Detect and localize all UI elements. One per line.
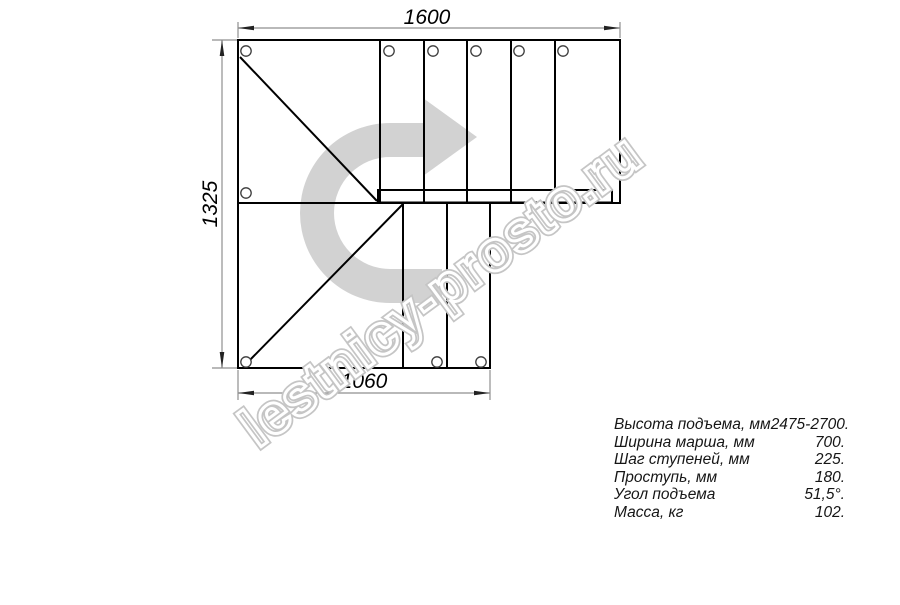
spec-value: 225. xyxy=(815,451,845,469)
spec-row: Шаг ступеней, мм 225. xyxy=(614,451,845,469)
spec-row: Ширина марша, мм 700. xyxy=(614,434,845,452)
spec-label: Масса, кг xyxy=(614,504,683,522)
post-hole-circle xyxy=(428,46,438,56)
spec-label: Ширина марша, мм xyxy=(614,434,755,452)
dimension-arrowhead xyxy=(220,40,225,56)
post-hole-circle xyxy=(241,188,251,198)
dimension-label-top: 1600 xyxy=(404,6,451,29)
dimension-top: 1600 xyxy=(238,6,620,38)
spec-row: Масса, кг 102. xyxy=(614,504,845,522)
spec-table: Высота подъема, мм 2475-2700. Ширина мар… xyxy=(614,416,845,522)
spec-label: Высота подъема, мм xyxy=(614,416,771,434)
dimension-arrowhead xyxy=(238,26,254,31)
post-hole-circle xyxy=(514,46,524,56)
spec-label: Шаг ступеней, мм xyxy=(614,451,750,469)
post-hole-circle xyxy=(384,46,394,56)
spec-value: 102. xyxy=(815,504,845,522)
post-hole-circle xyxy=(476,357,486,367)
spec-row: Высота подъема, мм 2475-2700. xyxy=(614,416,845,434)
post-hole-circle xyxy=(558,46,568,56)
spec-value: 700. xyxy=(815,434,845,452)
spec-value: 51,5°. xyxy=(804,486,845,504)
post-hole-circle xyxy=(432,357,442,367)
spec-label: Проступь, мм xyxy=(614,469,717,487)
post-hole-circle xyxy=(241,357,251,367)
stair-plan-page: 1600 1325 1060 lestnicy-prosto.ru lestni… xyxy=(0,0,900,600)
dimension-arrowhead xyxy=(220,352,225,368)
spec-label: Угол подъема xyxy=(614,486,715,504)
post-hole-circle xyxy=(241,46,251,56)
spec-row: Угол подъема 51,5°. xyxy=(614,486,845,504)
dimension-left: 1325 xyxy=(199,40,237,368)
dimension-label-left: 1325 xyxy=(199,180,222,227)
spec-row: Проступь, мм 180. xyxy=(614,469,845,487)
dimension-arrowhead xyxy=(604,26,620,31)
watermark: lestnicy-prosto.ru lestnicy-prosto.ru xyxy=(228,121,653,458)
spec-value: 2475-2700. xyxy=(771,416,849,434)
watermark-outline-text: lestnicy-prosto.ru xyxy=(228,121,653,458)
post-hole-circle xyxy=(471,46,481,56)
dimension-arrowhead xyxy=(474,391,490,396)
spec-value: 180. xyxy=(815,469,845,487)
